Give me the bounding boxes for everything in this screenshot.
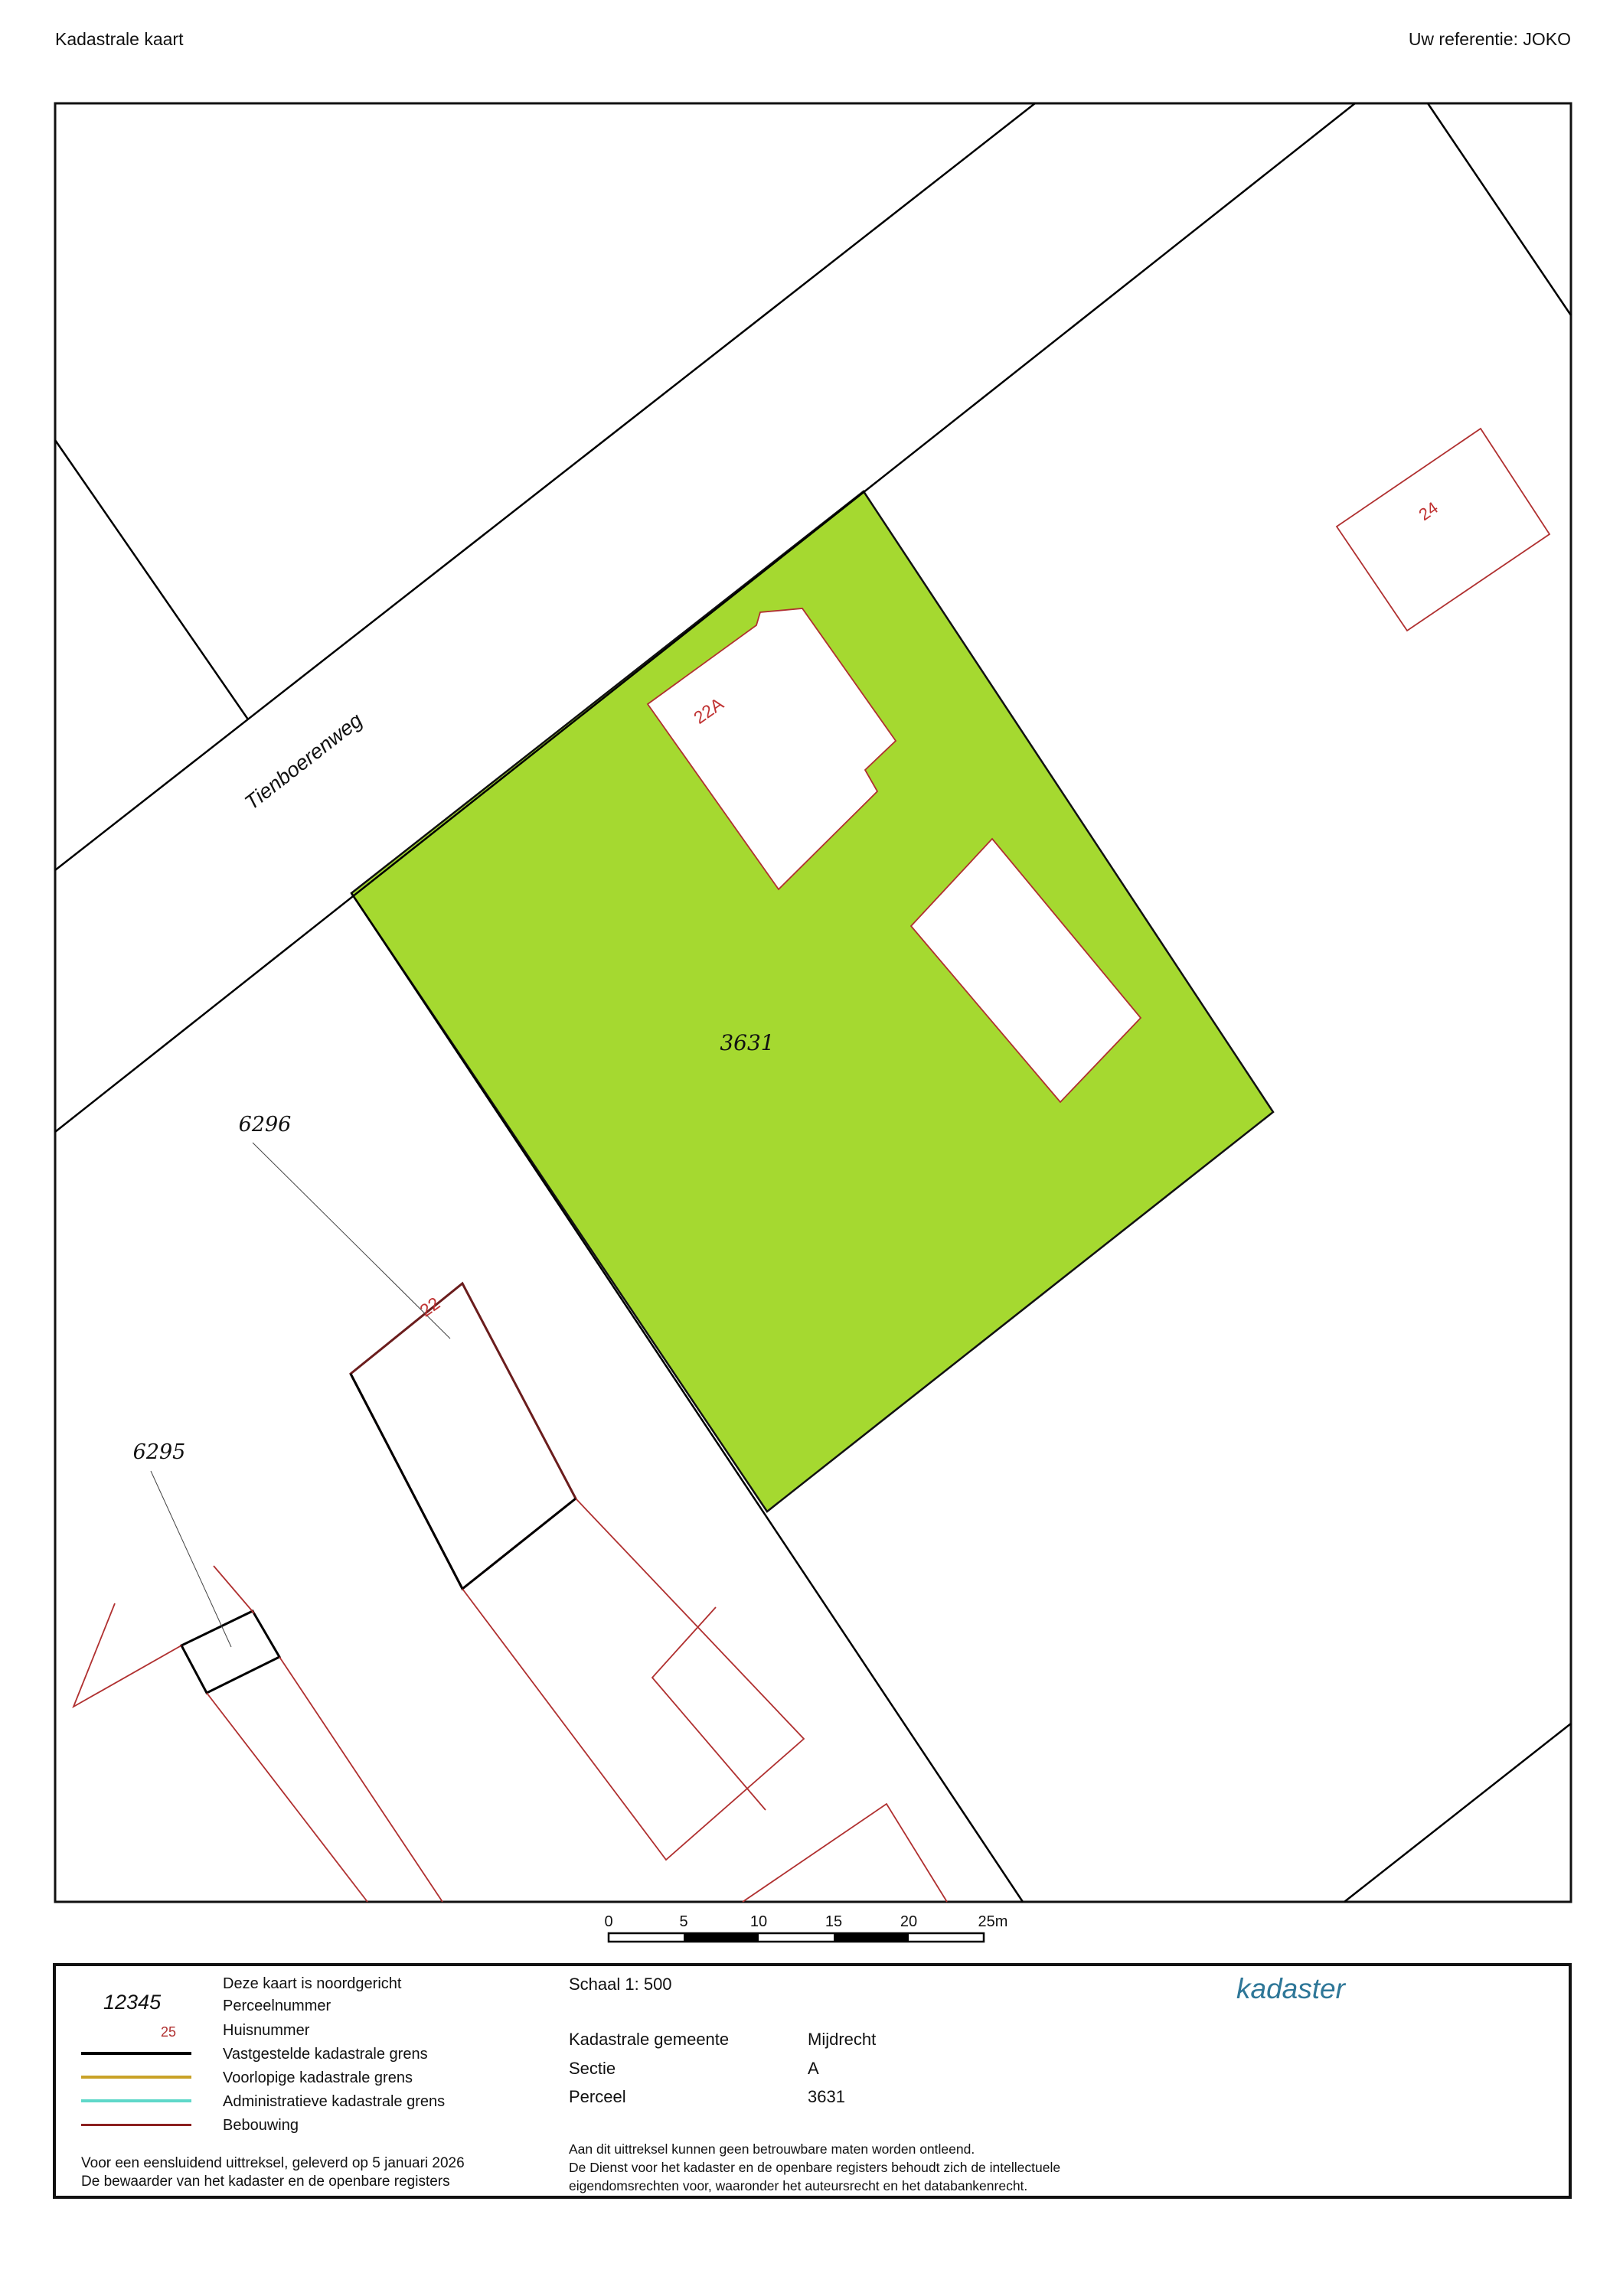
detail-sectie-value: A <box>808 2059 819 2079</box>
legend-parcel-number-label: Perceelnummer <box>223 1998 331 2015</box>
scale-tick-25m: 25m <box>978 1913 1008 1930</box>
legend-bebouwing-label: Bebouwing <box>223 2117 299 2135</box>
disclaimer-line1: Aan dit uittreksel kunnen geen betrouwba… <box>569 2141 975 2157</box>
legend-voorlopig-label: Voorlopige kadastrale grens <box>223 2069 413 2087</box>
detail-sectie-label: Sectie <box>569 2059 616 2079</box>
legend-line-bebouwing <box>81 2124 191 2126</box>
scale-tick-5: 5 <box>679 1913 687 1930</box>
detail-perceel-label: Perceel <box>569 2087 626 2107</box>
cadastral-map: 3631 6296 6295 Tienboerenweg 22A 22 24 0… <box>0 0 1623 2296</box>
legend-line-administratief <box>81 2099 191 2102</box>
legend-administratief-label: Administratieve kadastrale grens <box>223 2093 445 2111</box>
scale-bar-frame <box>609 1933 984 1942</box>
scale-tick-15: 15 <box>825 1913 842 1930</box>
scale-label: Schaal 1: 500 <box>569 1975 672 1994</box>
legend-house-number-label: Huisnummer <box>223 2022 309 2040</box>
parcel-number-6296-label: 6296 <box>239 1113 292 1137</box>
page: Kadastrale kaart Uw referentie: JOKO <box>0 0 1623 2296</box>
legend-parcel-number-sample: 12345 <box>103 1991 161 2014</box>
legend-footer-line2: De bewaarder van het kadaster en de open… <box>81 2174 450 2190</box>
scale-bar: 0 5 10 15 20 25m <box>604 1913 1007 1942</box>
legend-vastgesteld-label: Vastgestelde kadastrale grens <box>223 2046 428 2063</box>
scale-tick-0: 0 <box>604 1913 612 1930</box>
scale-tick-20: 20 <box>900 1913 917 1930</box>
scale-bar-segment-black-2 <box>834 1933 909 1942</box>
scale-tick-10: 10 <box>750 1913 767 1930</box>
north-note: Deze kaart is noordgericht <box>223 1975 401 1993</box>
kadaster-logo-text: kadaster <box>1236 1973 1345 2005</box>
detail-gemeente-label: Kadastrale gemeente <box>569 2030 729 2050</box>
legend-footer-line1: Voor een eensluidend uittreksel, gelever… <box>81 2155 465 2172</box>
legend-line-voorlopig <box>81 2076 191 2079</box>
disclaimer-line2: De Dienst voor het kadaster en de openba… <box>569 2160 1060 2176</box>
parcel-number-3631-label: 3631 <box>720 1030 774 1055</box>
legend-line-vastgesteld <box>81 2052 191 2055</box>
detail-gemeente-value: Mijdrecht <box>808 2030 876 2050</box>
parcel-number-6295-label: 6295 <box>133 1440 186 1464</box>
disclaimer-line3: eigendomsrechten voor, waaronder het aut… <box>569 2178 1027 2194</box>
detail-perceel-value: 3631 <box>808 2087 845 2107</box>
scale-bar-segment-black-1 <box>684 1933 759 1942</box>
legend-house-number-sample: 25 <box>161 2024 176 2040</box>
